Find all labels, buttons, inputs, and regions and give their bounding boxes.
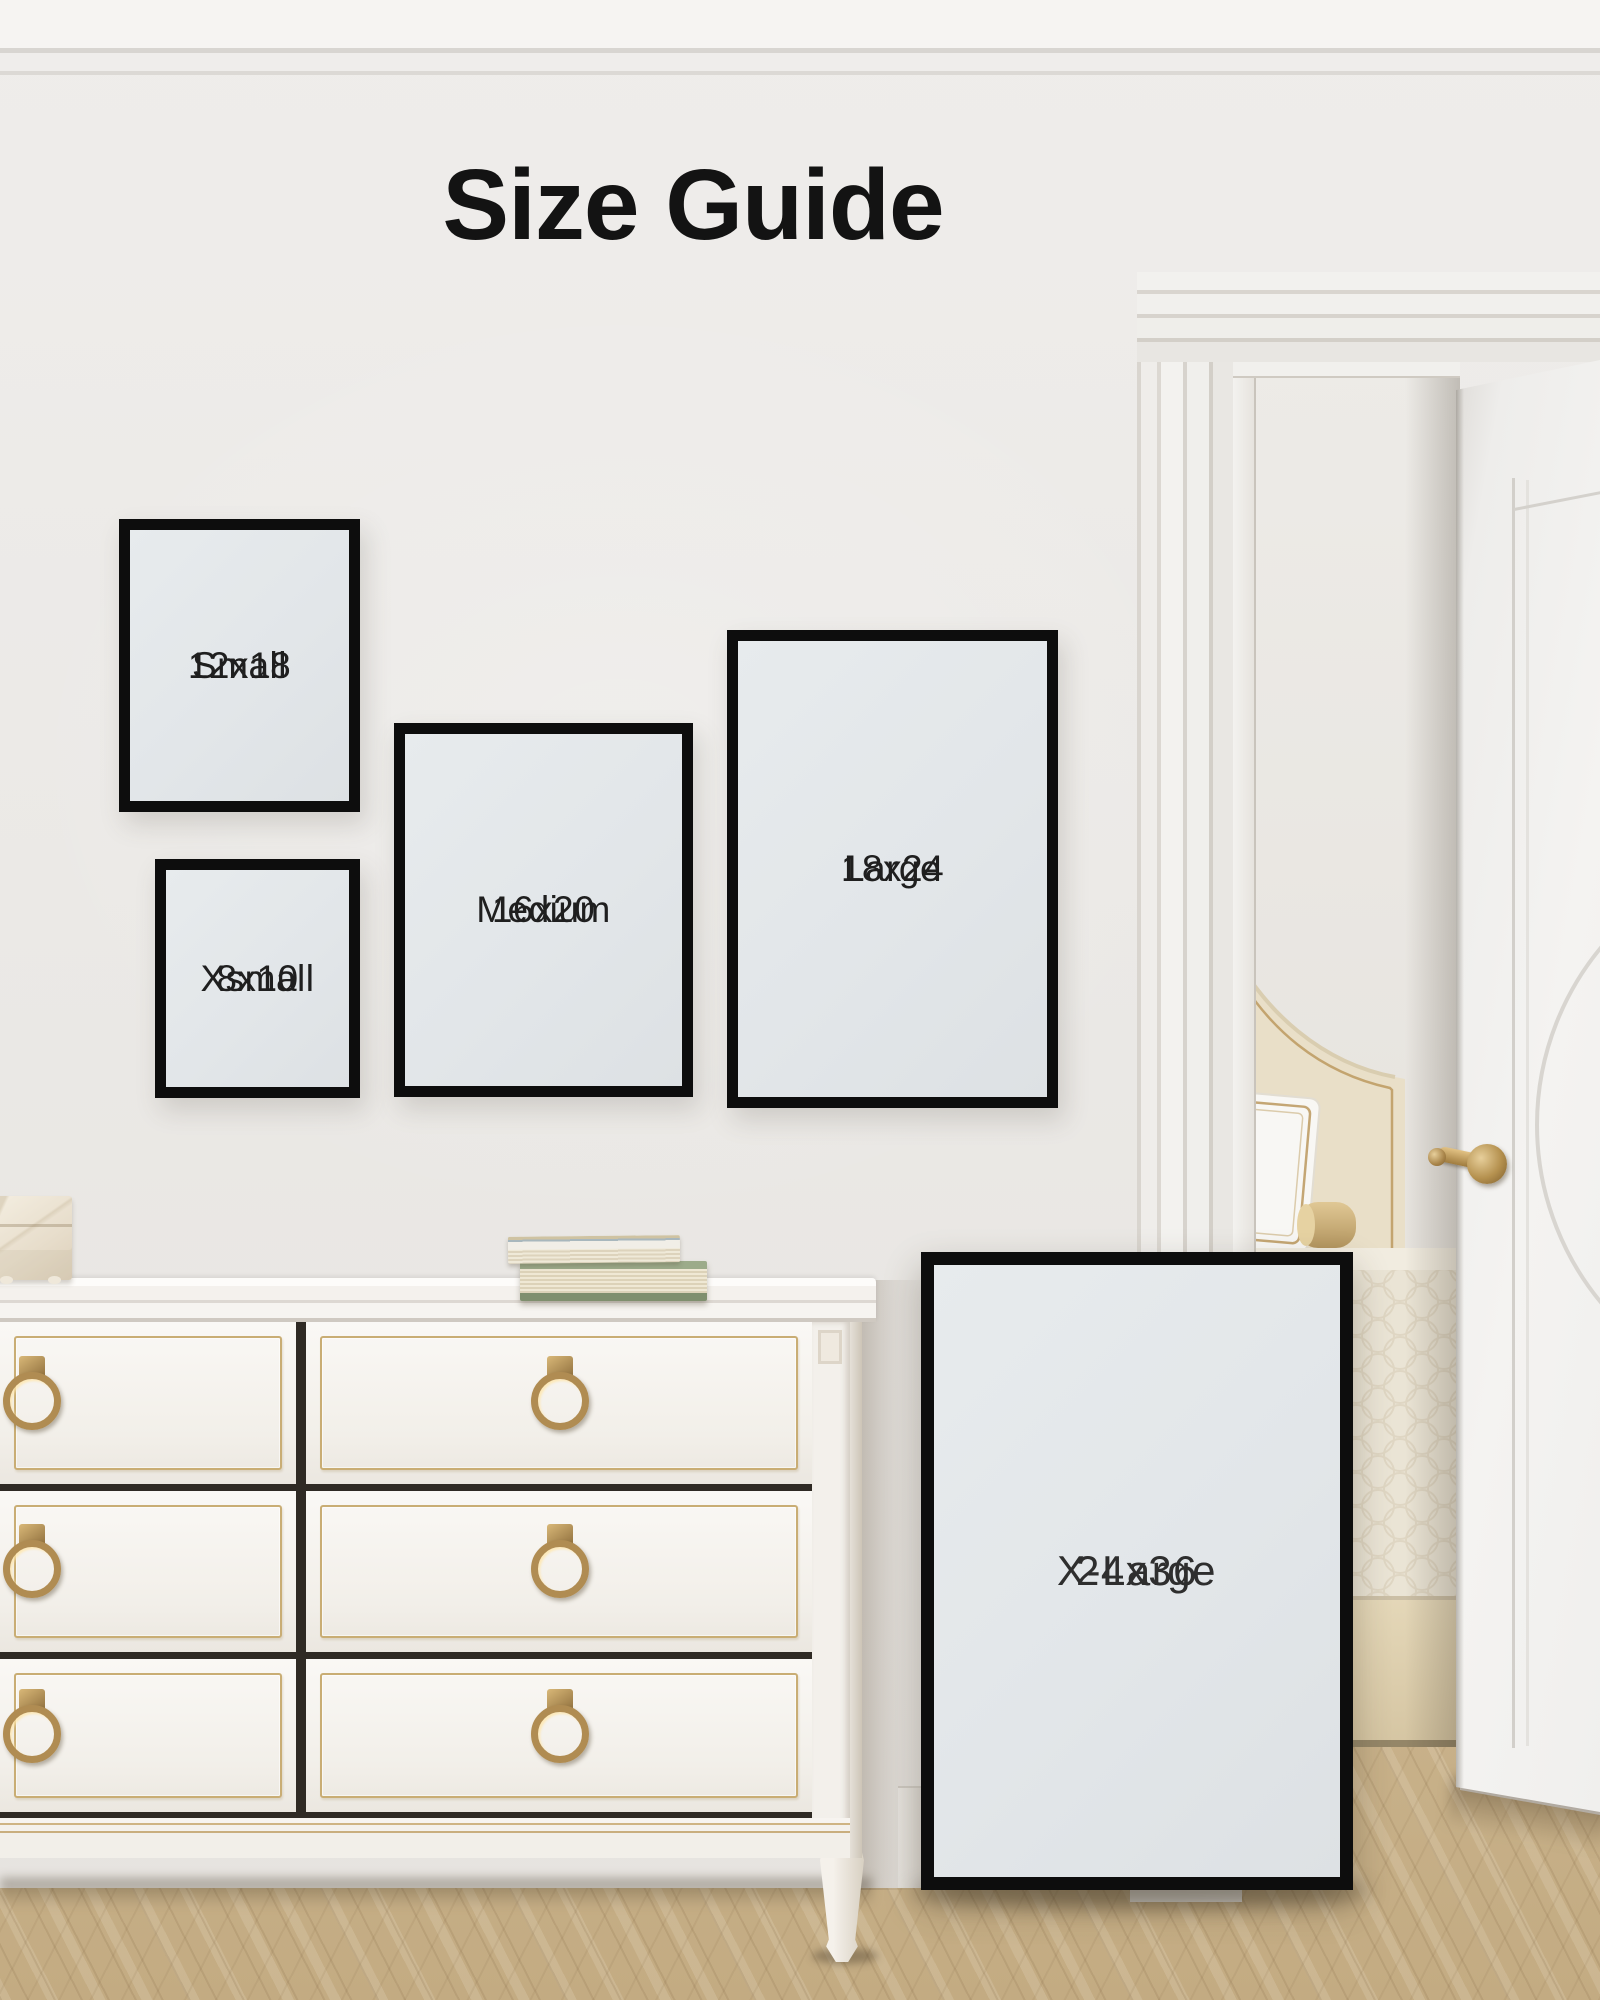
size-frame-dimensions: 24x36 — [1076, 1547, 1198, 1595]
page-title: Size Guide — [442, 148, 943, 263]
drawer — [0, 1659, 296, 1812]
size-frame-dimensions: 12x18 — [188, 645, 291, 687]
size-frame-xsmall: Xsmall 8x10 — [155, 859, 360, 1098]
crown-molding — [0, 0, 1600, 78]
size-frame-dimensions: 18x24 — [841, 848, 944, 890]
door-edge-shading — [1456, 358, 1464, 1818]
door-frame-top — [1137, 272, 1600, 362]
door-handle-finial — [1428, 1148, 1446, 1166]
size-frame-medium: Medium 16x20 — [394, 723, 693, 1097]
decorative-box — [0, 1196, 72, 1280]
size-frame-small: Small 12x18 — [119, 519, 360, 812]
dresser-top — [0, 1278, 876, 1322]
dresser-floor-shadow — [0, 1878, 872, 1908]
drawer — [306, 1322, 812, 1484]
size-frame-dimensions: 8x10 — [216, 958, 298, 1000]
door-handle-rosette — [1467, 1144, 1507, 1184]
size-frame-xlarge: X-Large 24x36 — [921, 1252, 1353, 1890]
dresser-corner-post — [812, 1322, 850, 1858]
drawer-ring-pull — [0, 1689, 64, 1775]
dresser-base — [0, 1818, 850, 1858]
drawer-ring-pull — [0, 1524, 64, 1610]
size-frame-dimensions: 16x20 — [492, 889, 595, 931]
drawer — [0, 1491, 296, 1652]
door-panel-groove — [1526, 480, 1529, 1746]
drawer — [306, 1659, 812, 1812]
drawer — [306, 1491, 812, 1652]
size-guide-mockup: Size Guide Small 12x18 Xs — [0, 0, 1600, 2000]
drawer-ring-pull — [528, 1356, 592, 1442]
open-door — [1450, 358, 1600, 1818]
wall-shadow — [852, 1280, 928, 1890]
door-panel-arc — [1535, 845, 1600, 1405]
drawer-ring-pull — [528, 1524, 592, 1610]
door-panel-groove — [1512, 478, 1515, 1748]
size-frame-large: Large 18x24 — [727, 630, 1058, 1108]
book-green — [520, 1261, 707, 1301]
drawer-ring-pull — [528, 1689, 592, 1775]
book-white — [508, 1235, 680, 1264]
dresser-side — [850, 1322, 862, 1858]
dresser — [0, 1322, 862, 1858]
drawer — [0, 1322, 296, 1484]
drawer-ring-pull — [0, 1356, 64, 1442]
